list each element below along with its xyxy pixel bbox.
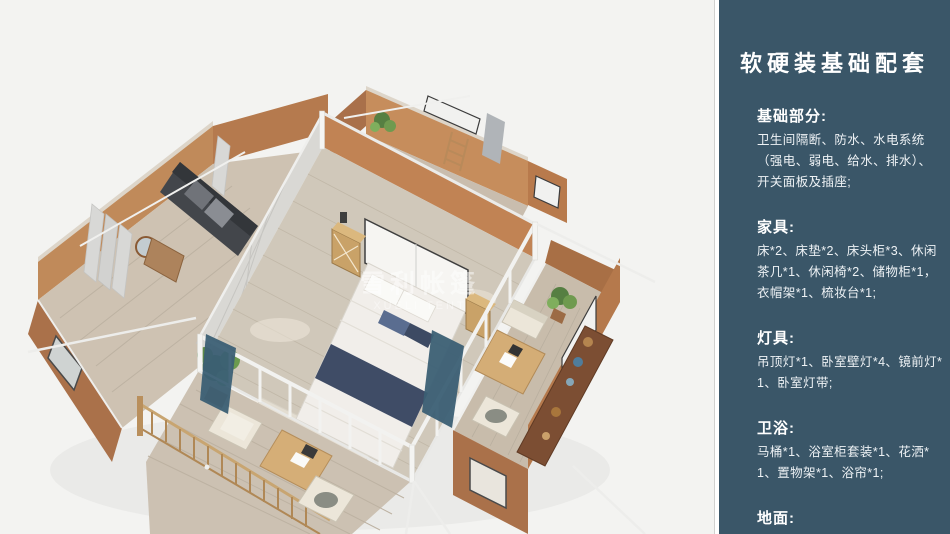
spec-section-bath: 卫浴: 马桶*1、浴室柜套装*1、花洒*1、置物架*1、浴帘*1;	[740, 417, 943, 484]
spec-section-lighting: 灯具: 吊顶灯*1、卧室壁灯*4、镜前灯*1、卧室灯带;	[740, 327, 943, 394]
watermark: 雪利帐篷 XUELI TENT	[360, 269, 480, 312]
section-heading-lighting: 灯具:	[757, 327, 943, 348]
floorplan-render-panel: 雪利帐篷 XUELI TENT	[0, 0, 714, 534]
watermark-cn: 雪利帐篷	[360, 269, 480, 298]
slide: 雪利帐篷 XUELI TENT 软硬装基础配套 基础部分: 卫生间隔断、防水、水…	[0, 0, 950, 534]
section-body-bath: 马桶*1、浴室柜套装*1、花洒*1、置物架*1、浴帘*1;	[757, 442, 943, 484]
spec-section-furniture: 家具: 床*2、床垫*2、床头柜*3、休闲茶几*1、休闲椅*2、储物柜*1，衣帽…	[740, 216, 943, 304]
section-heading-floor: 地面:	[757, 507, 943, 528]
floorplan-illustration: 雪利帐篷 XUELI TENT	[0, 0, 714, 534]
spec-sidebar: 软硬装基础配套 基础部分: 卫生间隔断、防水、水电系统（强电、弱电、给水、排水）…	[719, 0, 950, 534]
spec-section-floor: 地面: 强化木地板、卫生间防滑防潮石塑板;	[740, 507, 943, 534]
section-body-basics: 卫生间隔断、防水、水电系统（强电、弱电、给水、排水）、开关面板及插座;	[757, 130, 943, 193]
sidebar-title: 软硬装基础配套	[740, 46, 943, 78]
section-heading-basics: 基础部分:	[757, 105, 943, 126]
section-heading-bath: 卫浴:	[757, 417, 943, 438]
watermark-en: XUELI TENT	[373, 300, 466, 312]
section-heading-furniture: 家具:	[757, 216, 943, 237]
spec-section-basics: 基础部分: 卫生间隔断、防水、水电系统（强电、弱电、给水、排水）、开关面板及插座…	[740, 105, 943, 193]
section-body-furniture: 床*2、床垫*2、床头柜*3、休闲茶几*1、休闲椅*2、储物柜*1，衣帽架*1、…	[757, 241, 943, 304]
section-body-lighting: 吊顶灯*1、卧室壁灯*4、镜前灯*1、卧室灯带;	[757, 352, 943, 394]
